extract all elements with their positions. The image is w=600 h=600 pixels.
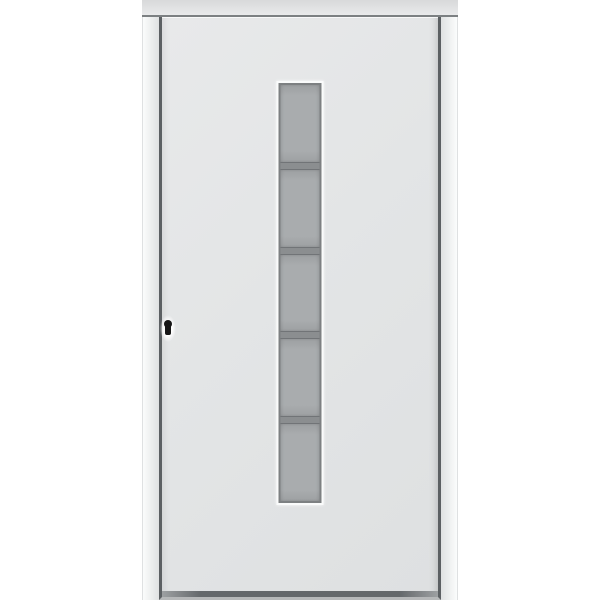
pane-divider	[281, 416, 320, 424]
frame-head	[142, 0, 458, 17]
door-frame	[142, 0, 458, 600]
pane-divider	[281, 247, 320, 255]
frame-left-jamb	[142, 17, 159, 600]
glass-pane	[281, 85, 320, 162]
glass-pane	[281, 255, 320, 332]
glass-strip-inner	[279, 83, 322, 503]
glass-pane	[281, 339, 320, 416]
keyhole-icon	[160, 315, 176, 342]
pane-divider	[281, 331, 320, 339]
door-bottom-gap	[162, 591, 438, 597]
pane-divider	[281, 162, 320, 170]
door-product-image: Product image of a white entry door in a…	[0, 0, 600, 600]
glass-pane	[281, 424, 320, 501]
glass-pane	[281, 170, 320, 247]
glass-strip	[277, 81, 324, 505]
door-leaf	[159, 17, 441, 600]
frame-right-jamb	[441, 17, 458, 600]
